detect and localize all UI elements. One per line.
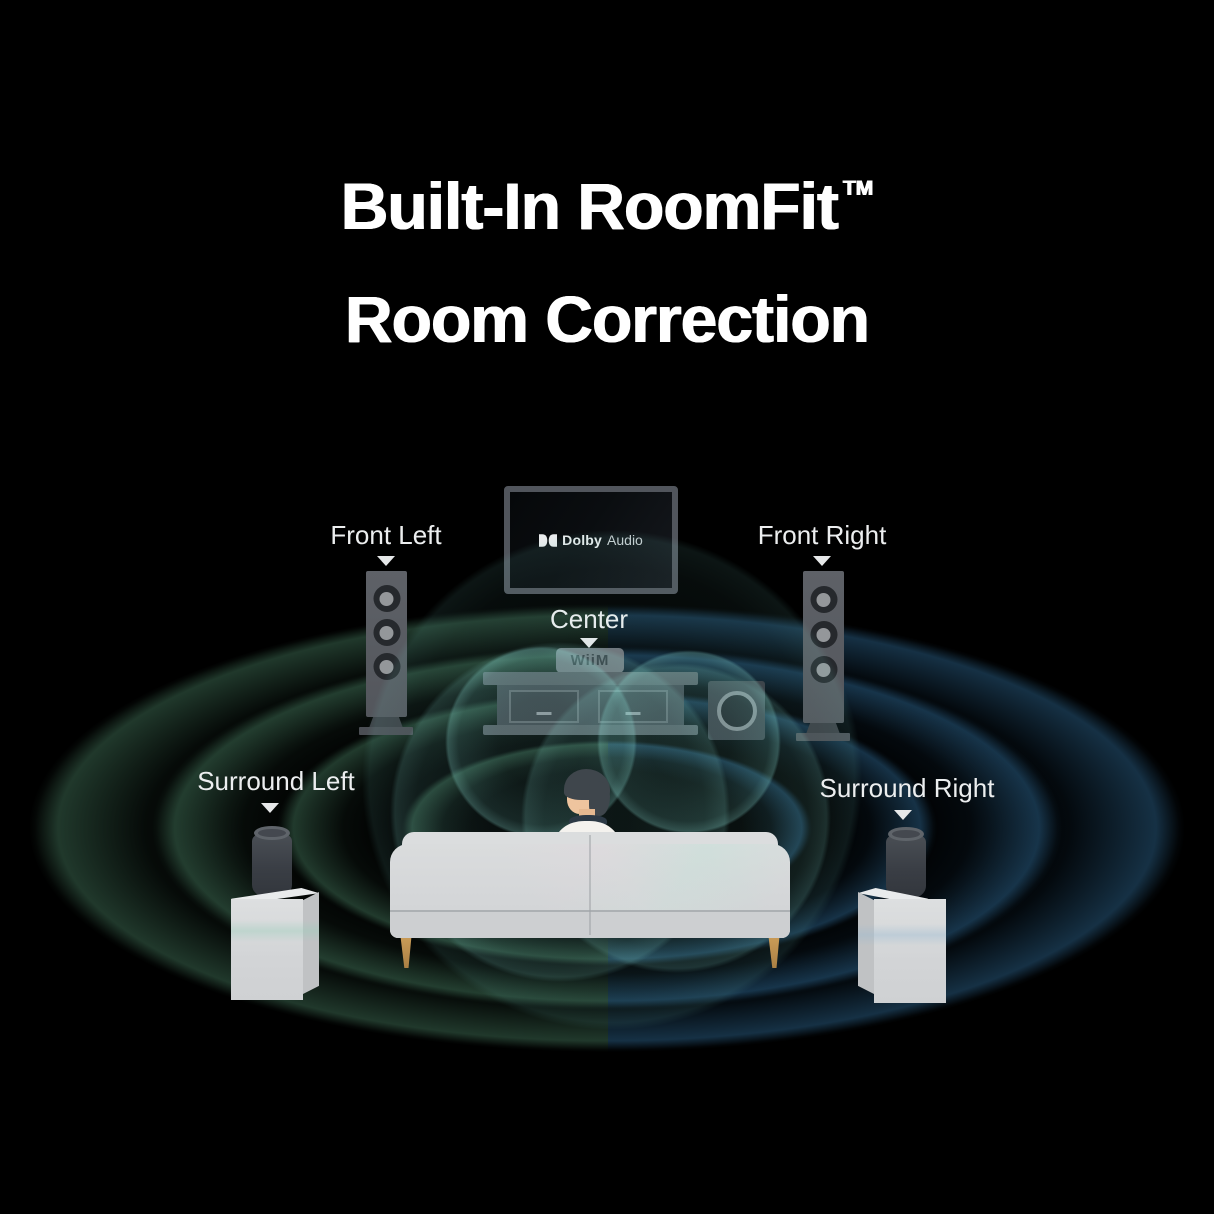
surround-left-speaker-top xyxy=(254,826,290,840)
surround-left-speaker xyxy=(252,832,292,898)
surround-right-speaker-top xyxy=(888,827,924,841)
down-arrow-icon xyxy=(813,556,831,566)
page-title: Built-In RoomFitTM Room Correction xyxy=(0,158,1214,367)
couch-cushion-seam xyxy=(589,835,591,935)
speaker-driver-icon xyxy=(373,585,400,612)
wave-reflection xyxy=(858,924,946,946)
down-arrow-icon xyxy=(894,810,912,820)
down-arrow-icon xyxy=(377,556,395,566)
title-line-2: Room Correction xyxy=(0,271,1214,367)
down-arrow-icon xyxy=(261,803,279,813)
listener-person xyxy=(551,769,623,839)
speaker-driver-icon xyxy=(373,619,400,646)
surround-left-pedestal-side xyxy=(303,892,319,994)
surround-left-pedestal xyxy=(231,899,303,1000)
speaker-driver-icon xyxy=(810,586,837,613)
wave-reflection xyxy=(231,920,319,942)
roomfit-infographic: Built-In RoomFitTM Room Correction Dolby… xyxy=(0,0,1214,1214)
title-line-1: Built-In RoomFitTM xyxy=(0,158,1214,271)
surround-right-speaker xyxy=(886,833,926,899)
title-text-roomfit: Built-In RoomFit xyxy=(341,169,838,243)
label-front-right: Front Right xyxy=(758,520,887,551)
surround-right-pedestal xyxy=(874,899,946,1003)
label-front-left: Front Left xyxy=(330,520,441,551)
label-surround-right: Surround Right xyxy=(820,773,995,804)
trademark-symbol: TM xyxy=(843,177,873,200)
label-surround-left: Surround Left xyxy=(197,766,355,797)
